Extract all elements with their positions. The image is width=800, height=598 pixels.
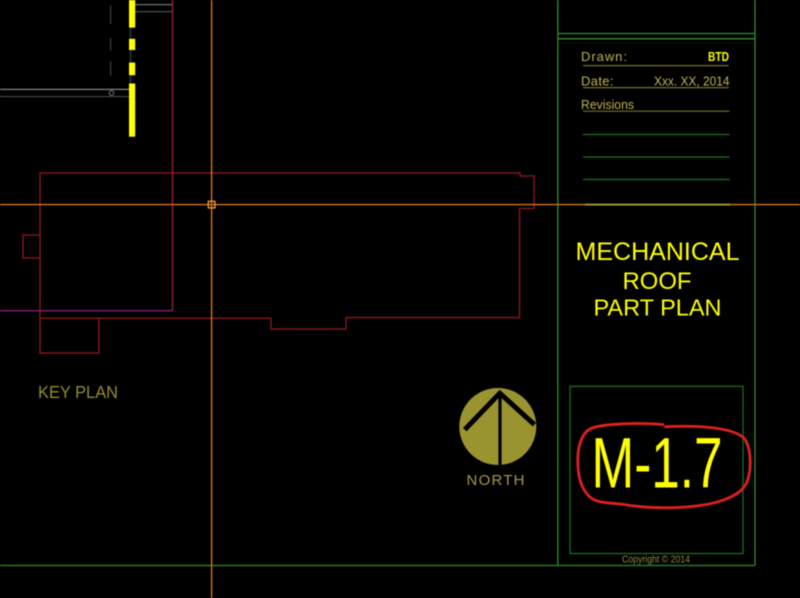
svg-text:PART PLAN: PART PLAN	[594, 295, 722, 321]
svg-text:NORTH: NORTH	[467, 472, 525, 489]
svg-text:Revisions: Revisions	[581, 97, 634, 112]
svg-text:ROOF: ROOF	[623, 268, 692, 295]
svg-text:Drawn:: Drawn:	[581, 49, 627, 64]
svg-text:M-1.7: M-1.7	[592, 424, 723, 504]
svg-text:Date:: Date:	[581, 73, 614, 88]
svg-text:Xxx. XX, 2014: Xxx. XX, 2014	[654, 73, 730, 88]
svg-text:MECHANICAL: MECHANICAL	[576, 238, 740, 266]
svg-text:KEY PLAN: KEY PLAN	[38, 382, 118, 402]
svg-text:BTD: BTD	[708, 49, 729, 64]
svg-text:Copyright © 2014: Copyright © 2014	[622, 554, 690, 566]
